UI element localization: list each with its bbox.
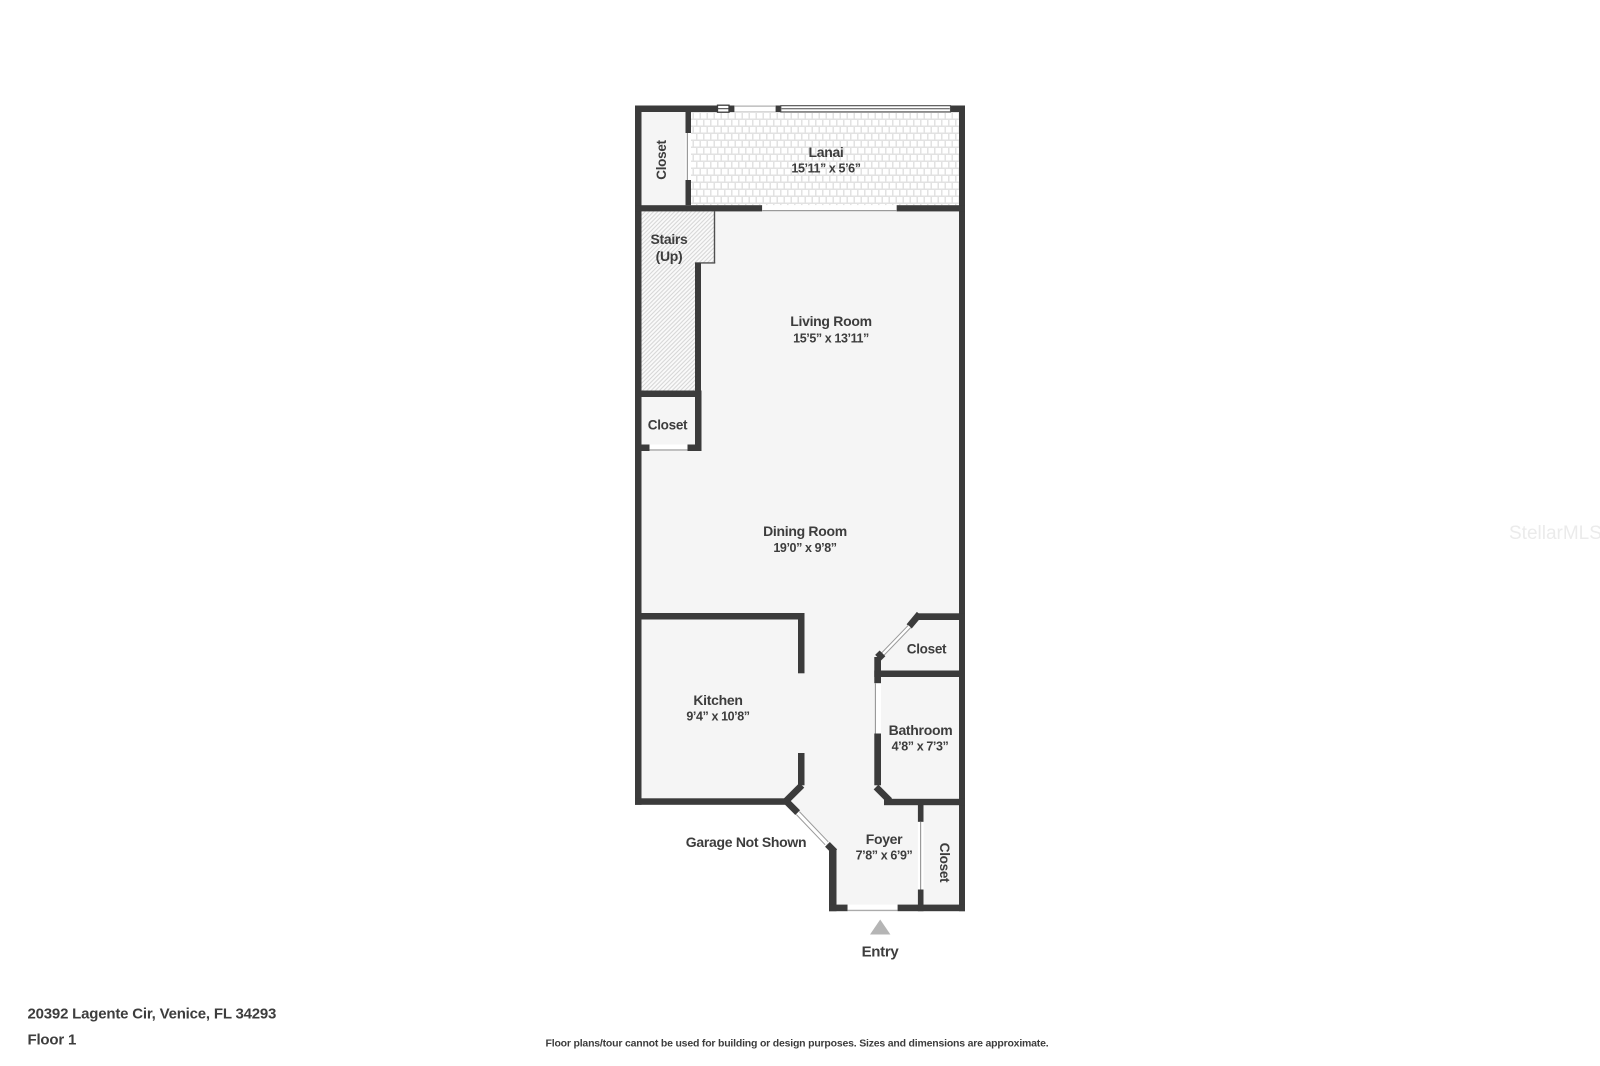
svg-text:Foyer: Foyer: [866, 831, 903, 847]
svg-text:Dining Room: Dining Room: [763, 523, 847, 539]
svg-text:Entry: Entry: [862, 944, 900, 961]
svg-text:15’5” x 13’11”: 15’5” x 13’11”: [793, 332, 869, 346]
svg-text:4’8” x 7’3”: 4’8” x 7’3”: [892, 740, 949, 754]
svg-text:Floor 1: Floor 1: [28, 1032, 77, 1049]
svg-text:20392 Lagente Cir, Venice, FL: 20392 Lagente Cir, Venice, FL 34293: [28, 1006, 277, 1023]
svg-text:StellarMLS: StellarMLS: [1509, 523, 1600, 544]
svg-text:7’8” x 6’9”: 7’8” x 6’9”: [856, 849, 913, 863]
svg-text:Closet: Closet: [654, 139, 669, 179]
svg-text:Living Room: Living Room: [790, 313, 871, 329]
svg-text:Bathroom: Bathroom: [889, 722, 953, 738]
svg-text:9’4” x 10’8”: 9’4” x 10’8”: [686, 710, 749, 724]
svg-text:Garage Not Shown: Garage Not Shown: [686, 834, 806, 850]
svg-text:19’0” x 9’8”: 19’0” x 9’8”: [773, 541, 836, 555]
svg-text:Stairs: Stairs: [650, 231, 688, 247]
svg-text:15’11” x 5’6”: 15’11” x 5’6”: [791, 162, 860, 176]
svg-text:Closet: Closet: [937, 843, 952, 883]
svg-text:(Up): (Up): [656, 248, 683, 264]
svg-text:Closet: Closet: [648, 418, 688, 433]
svg-text:Closet: Closet: [907, 642, 947, 657]
svg-text:Floor plans/tour cannot be use: Floor plans/tour cannot be used for buil…: [546, 1038, 1049, 1050]
svg-text:Lanai: Lanai: [808, 144, 843, 160]
svg-text:Kitchen: Kitchen: [693, 692, 742, 708]
